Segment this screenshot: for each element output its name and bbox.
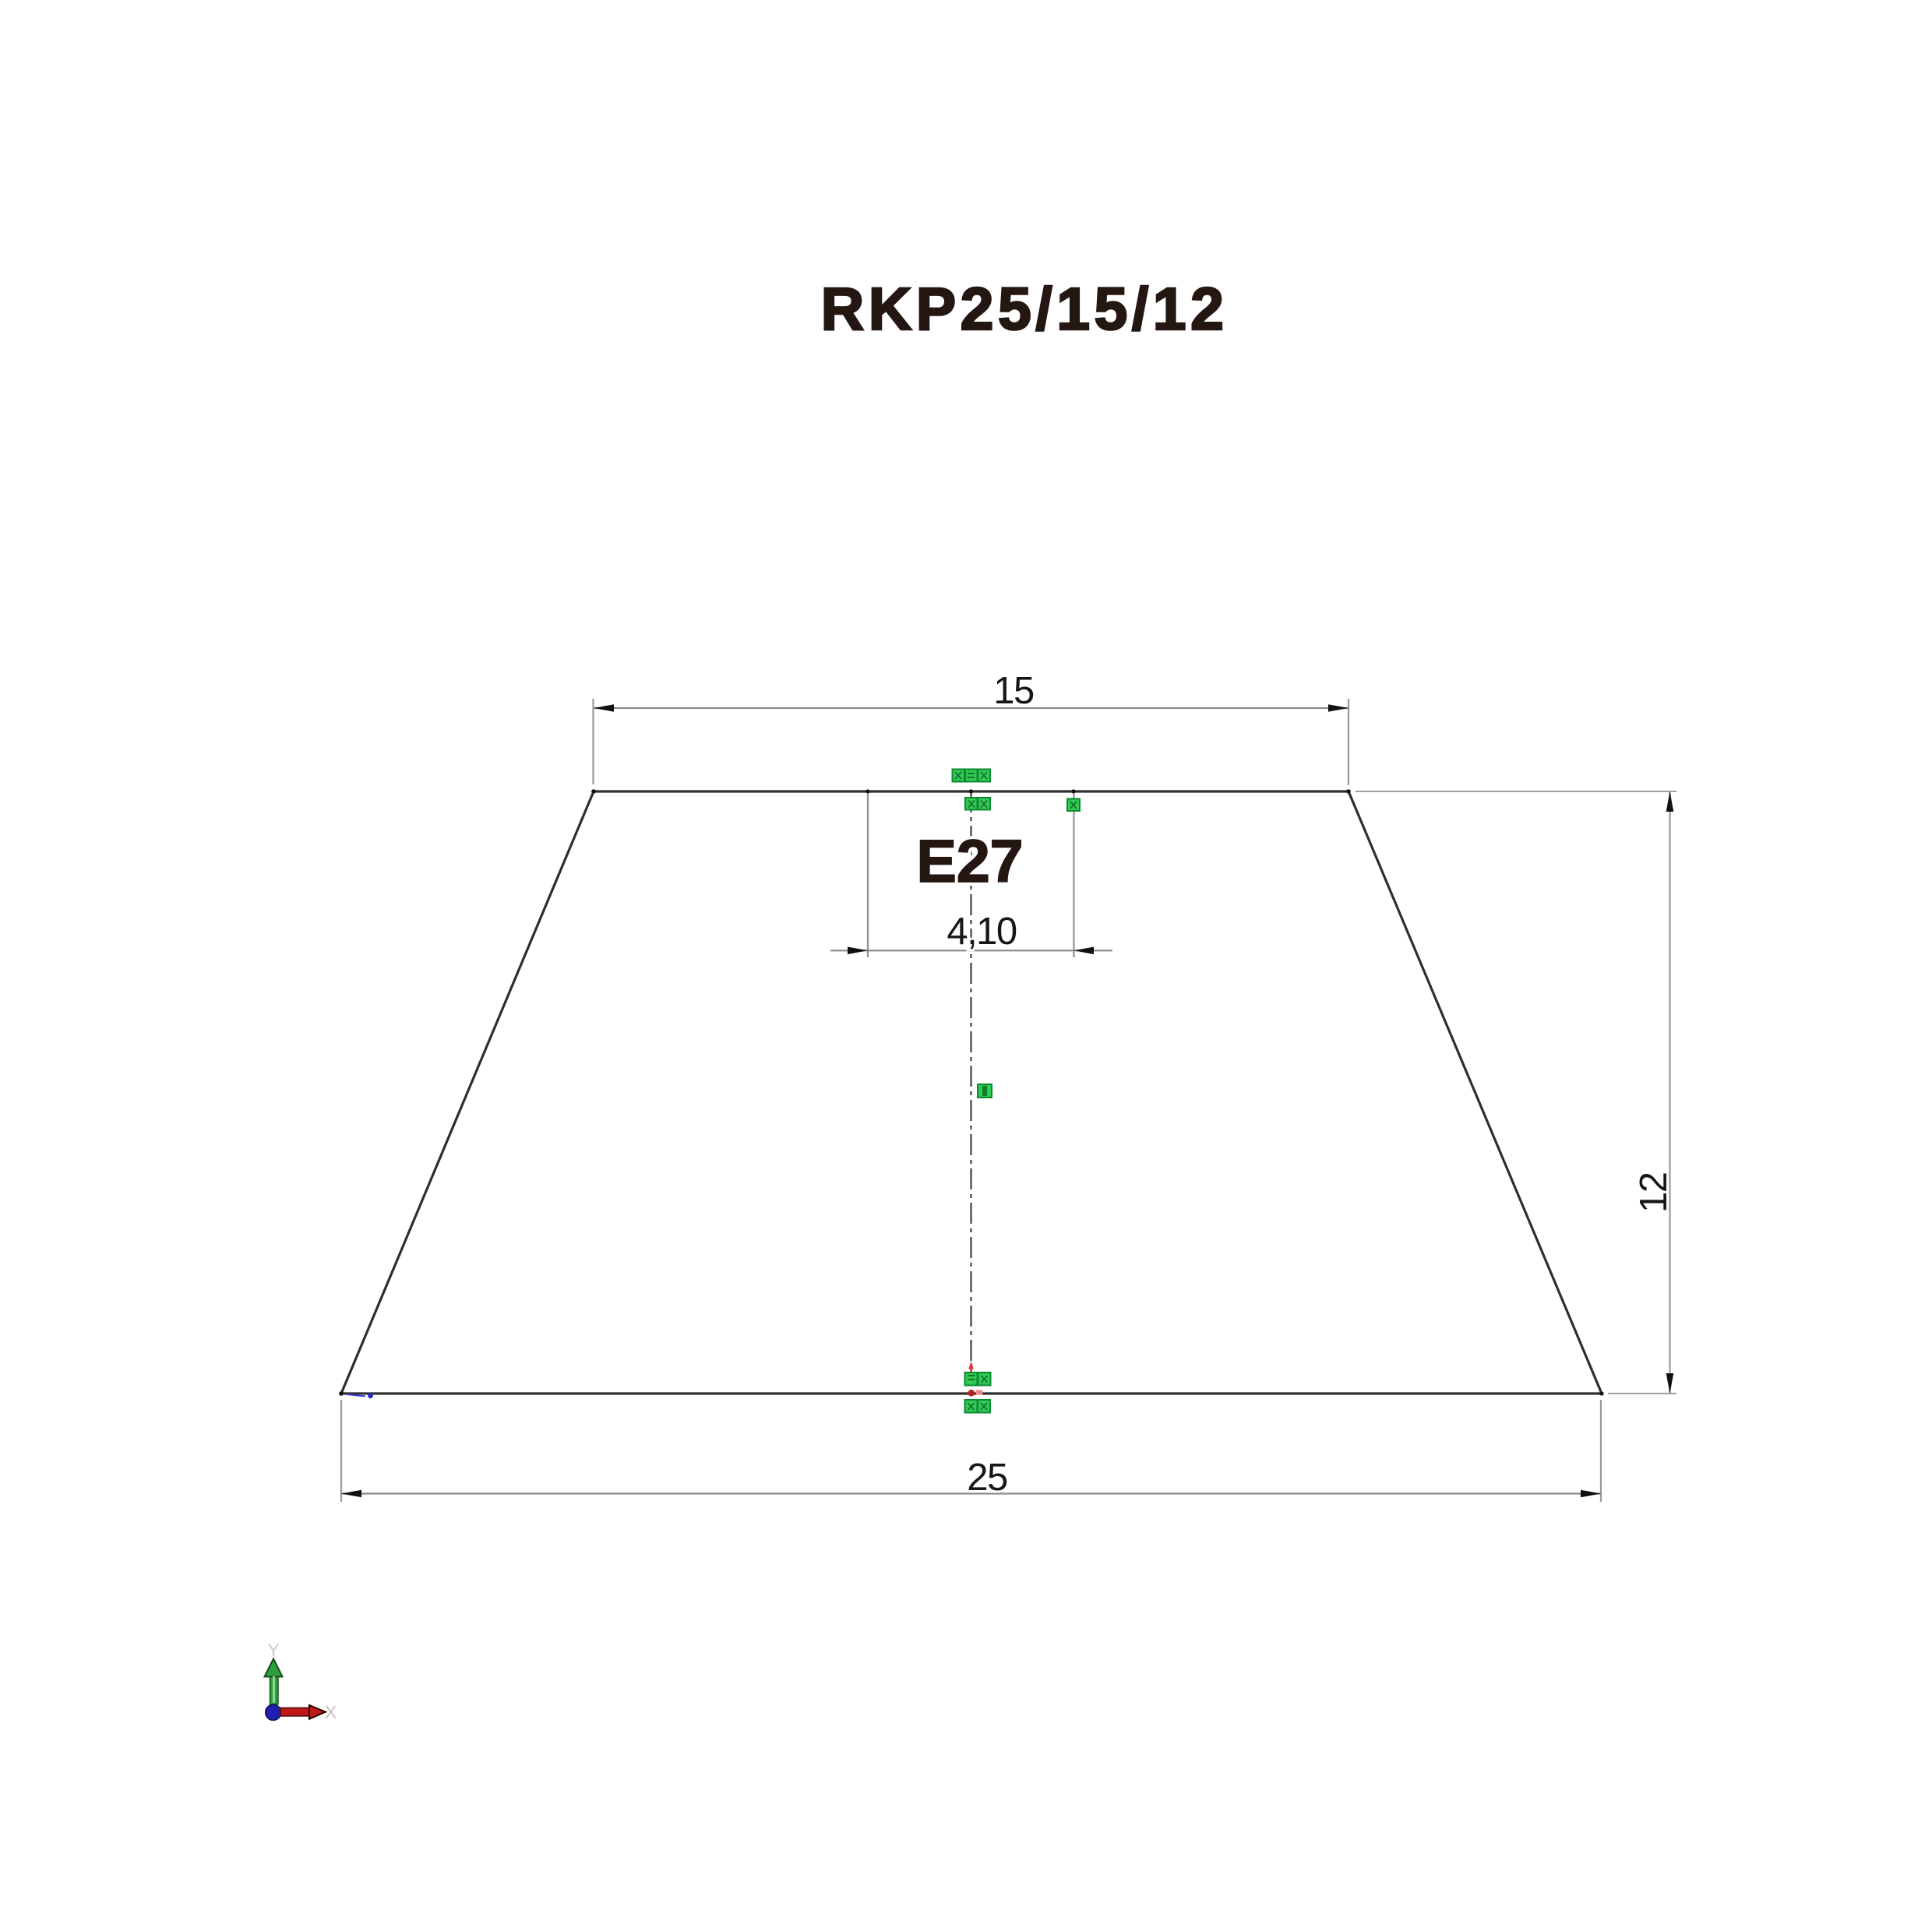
svg-text:25: 25 [967, 1457, 1007, 1499]
svg-text:4,10: 4,10 [947, 911, 1017, 953]
svg-text:Y: Y [267, 1640, 279, 1660]
svg-text:15: 15 [993, 670, 1034, 712]
svg-text:12: 12 [1633, 1172, 1675, 1213]
svg-text:RKP25/15/12: RKP25/15/12 [821, 276, 1229, 343]
svg-text:X: X [325, 1702, 337, 1722]
svg-text:E27: E27 [916, 828, 1023, 895]
